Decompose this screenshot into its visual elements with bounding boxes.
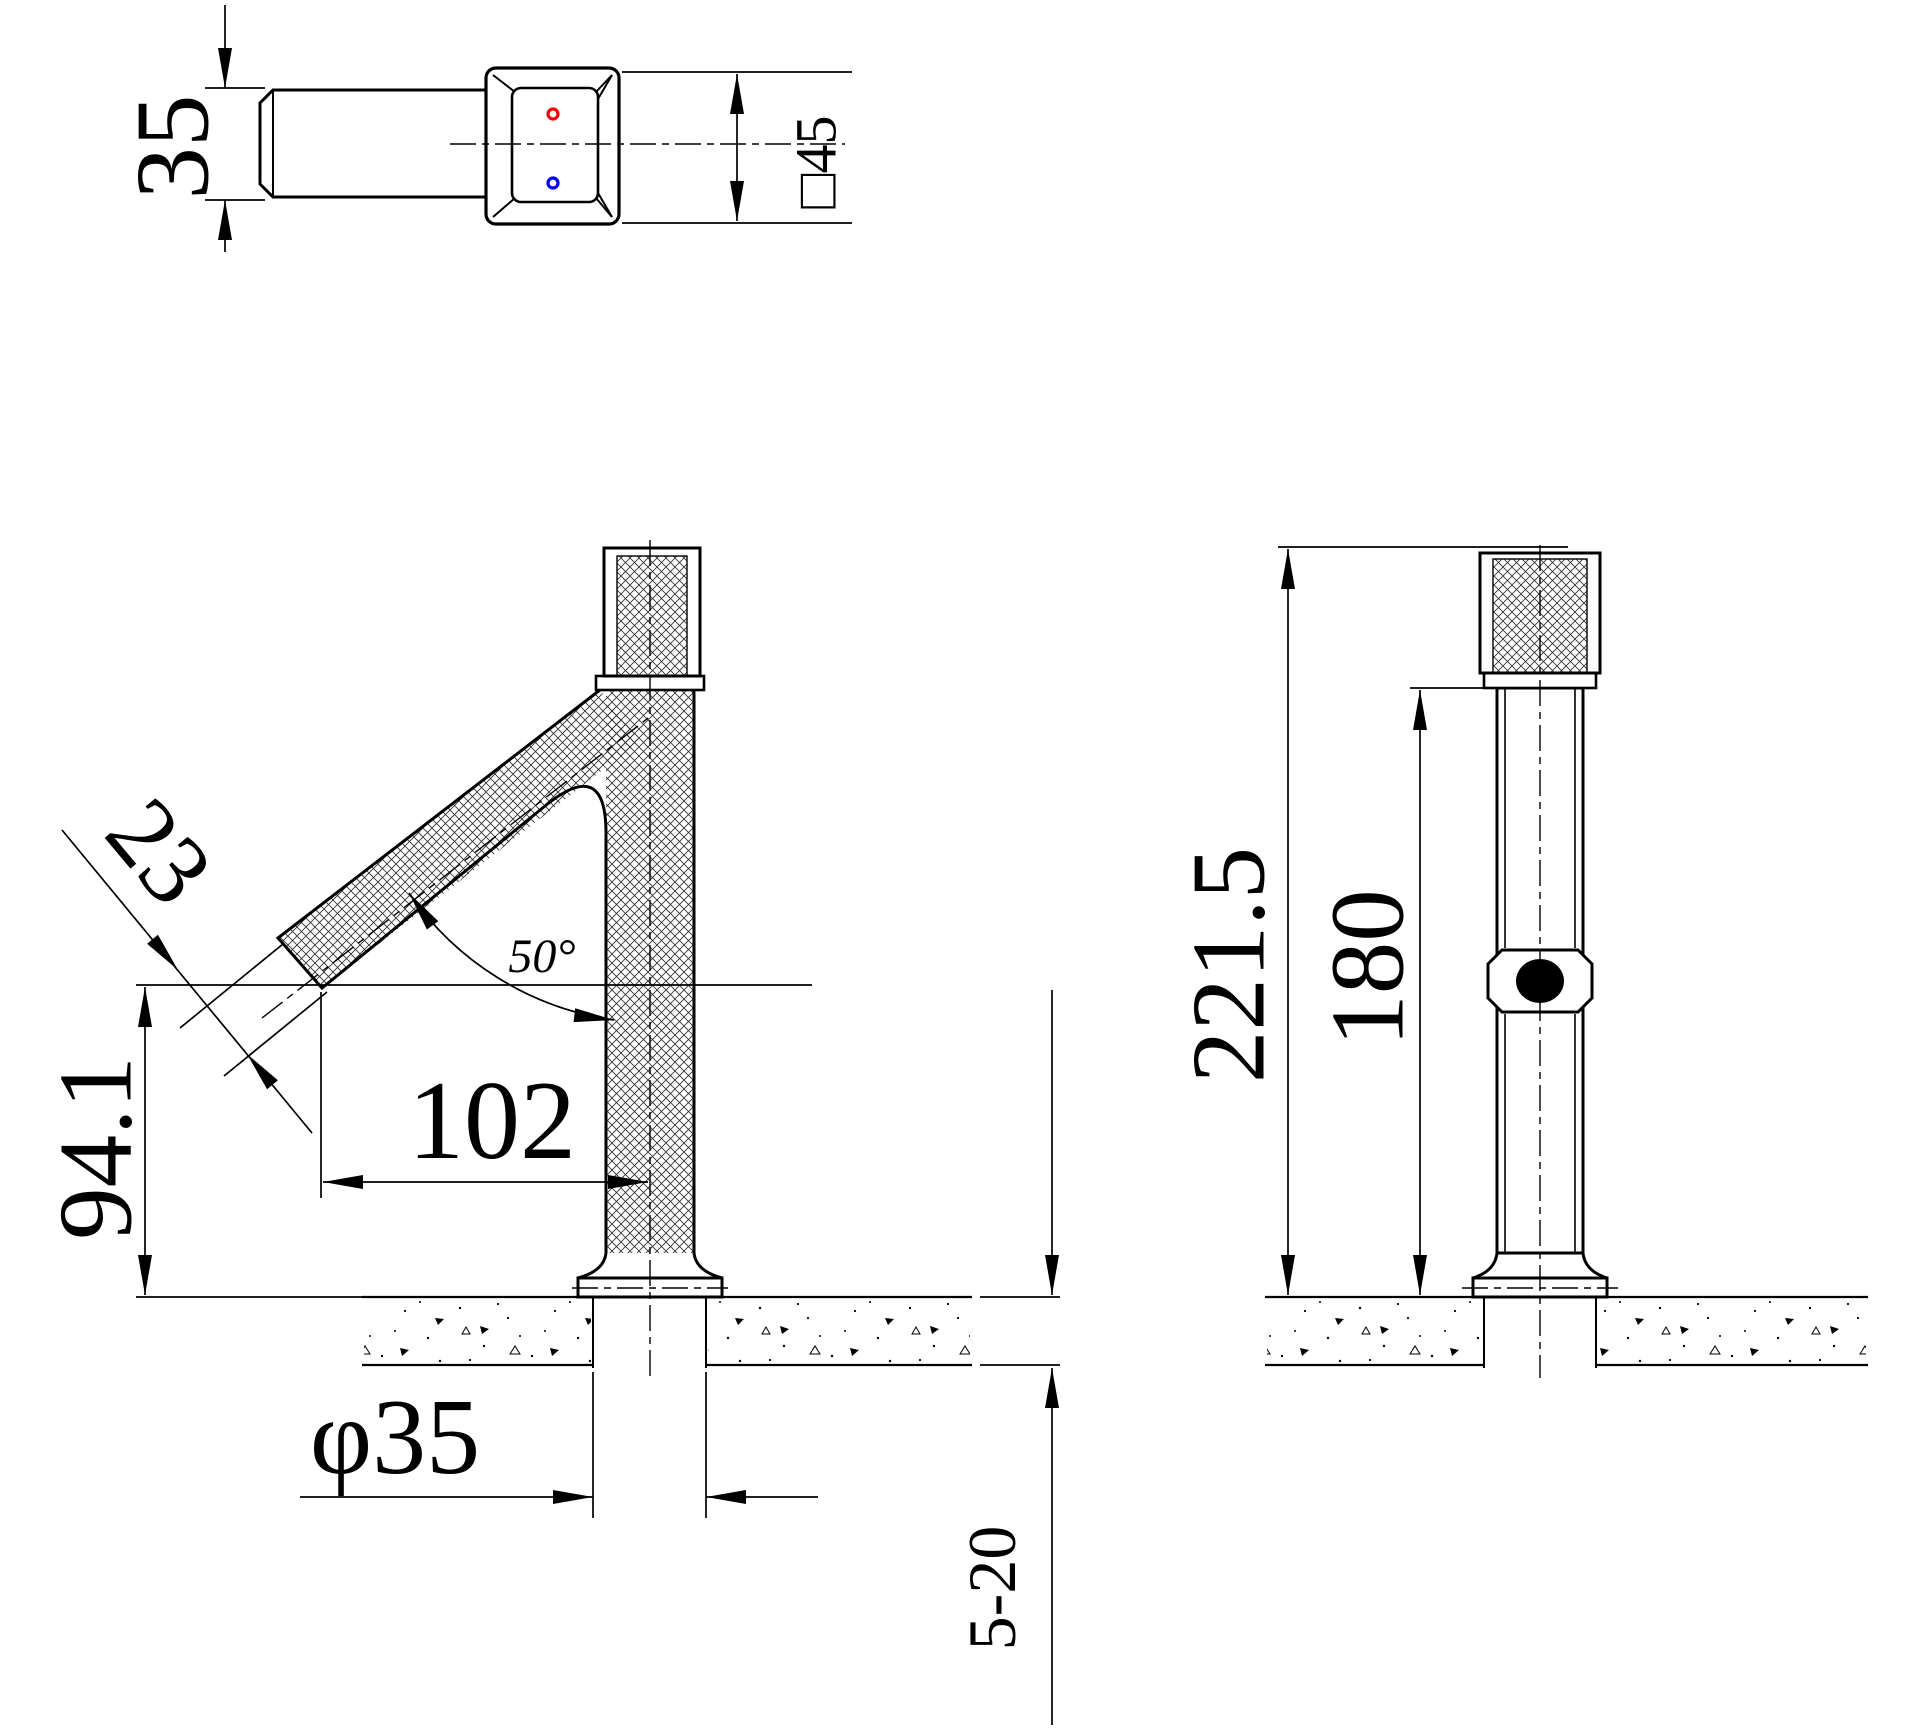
side-view: 221.5 180: [1170, 545, 1868, 1378]
front-view: 50° 23 94.1 102: [37, 540, 1060, 1725]
faucet-drawing-svg: 35 □45: [0, 0, 1920, 1730]
dim-spout-height-label: 94.1: [37, 1056, 154, 1240]
arrowhead: [1045, 1255, 1059, 1295]
arrowhead: [218, 48, 232, 88]
arrowhead: [1281, 549, 1295, 589]
arrowhead: [730, 74, 744, 114]
countertop-section-right: [1598, 1299, 1866, 1363]
dim-head-size-label: □45: [784, 115, 849, 208]
arrowhead: [218, 200, 232, 240]
countertop-section-right: [708, 1299, 970, 1363]
dim-deck-range-label: 5-20: [954, 1526, 1030, 1651]
arrowhead: [247, 1054, 278, 1089]
arrowhead: [1413, 690, 1427, 730]
knob-hatch: [617, 556, 687, 676]
arrowhead: [138, 987, 152, 1027]
top-view: 35 □45: [114, 5, 852, 252]
arrowhead: [138, 1255, 152, 1295]
dim-spout-width-label: 23: [85, 777, 234, 925]
dim-total-height-label: 221.5: [1170, 847, 1287, 1083]
hot-indicator-dot: [548, 109, 558, 119]
arrowhead: [730, 181, 744, 221]
arrowhead: [553, 1490, 593, 1504]
cold-indicator-dot: [548, 178, 558, 188]
arrowhead: [147, 935, 178, 970]
dim-top-width-label: 35: [114, 95, 231, 200]
arrowhead: [1281, 1255, 1295, 1295]
drawing-canvas: 35 □45: [0, 0, 1920, 1730]
countertop-section-left: [364, 1299, 591, 1363]
dim-body-height-label: 180: [1309, 889, 1426, 1047]
countertop-section-left: [1267, 1299, 1482, 1363]
dim-reach-label: 102: [408, 1059, 576, 1183]
arrowhead: [706, 1490, 746, 1504]
arrowhead: [1045, 1368, 1059, 1408]
arrowhead: [1413, 1255, 1427, 1295]
dim-shank-dia-label: φ35: [310, 1378, 480, 1497]
arrowhead: [323, 1175, 363, 1189]
spout-hatch: [278, 690, 640, 988]
dim-angle-label: 50°: [508, 930, 575, 983]
